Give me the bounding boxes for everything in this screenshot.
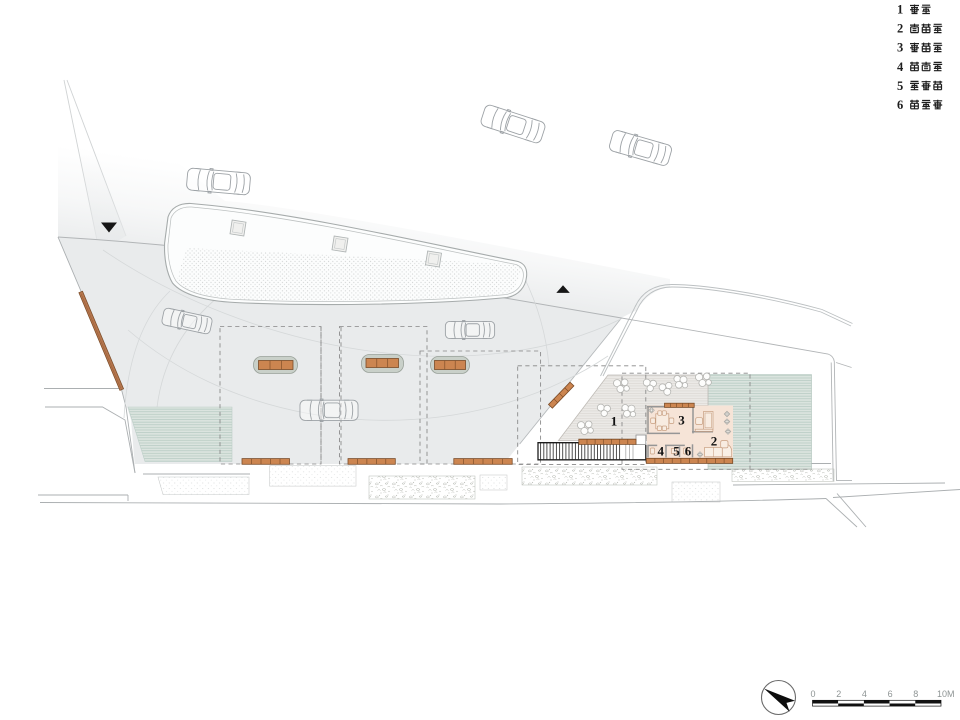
- svg-text:2: 2: [836, 689, 841, 699]
- svg-text:2: 2: [897, 22, 903, 36]
- svg-text:4: 4: [658, 443, 665, 458]
- svg-text:0: 0: [811, 689, 816, 699]
- svg-text:10M: 10M: [937, 689, 955, 699]
- svg-text:4: 4: [862, 689, 867, 699]
- svg-text:6: 6: [685, 443, 692, 458]
- svg-text:1: 1: [897, 3, 903, 17]
- svg-text:6: 6: [897, 98, 903, 112]
- svg-text:8: 8: [913, 689, 918, 699]
- svg-text:6: 6: [888, 689, 893, 699]
- svg-text:1: 1: [611, 413, 618, 428]
- svg-text:4: 4: [897, 60, 904, 74]
- svg-text:5: 5: [897, 79, 903, 93]
- svg-text:3: 3: [897, 41, 903, 55]
- svg-text:2: 2: [711, 434, 718, 449]
- svg-text:3: 3: [678, 412, 685, 427]
- svg-text:5: 5: [673, 443, 680, 458]
